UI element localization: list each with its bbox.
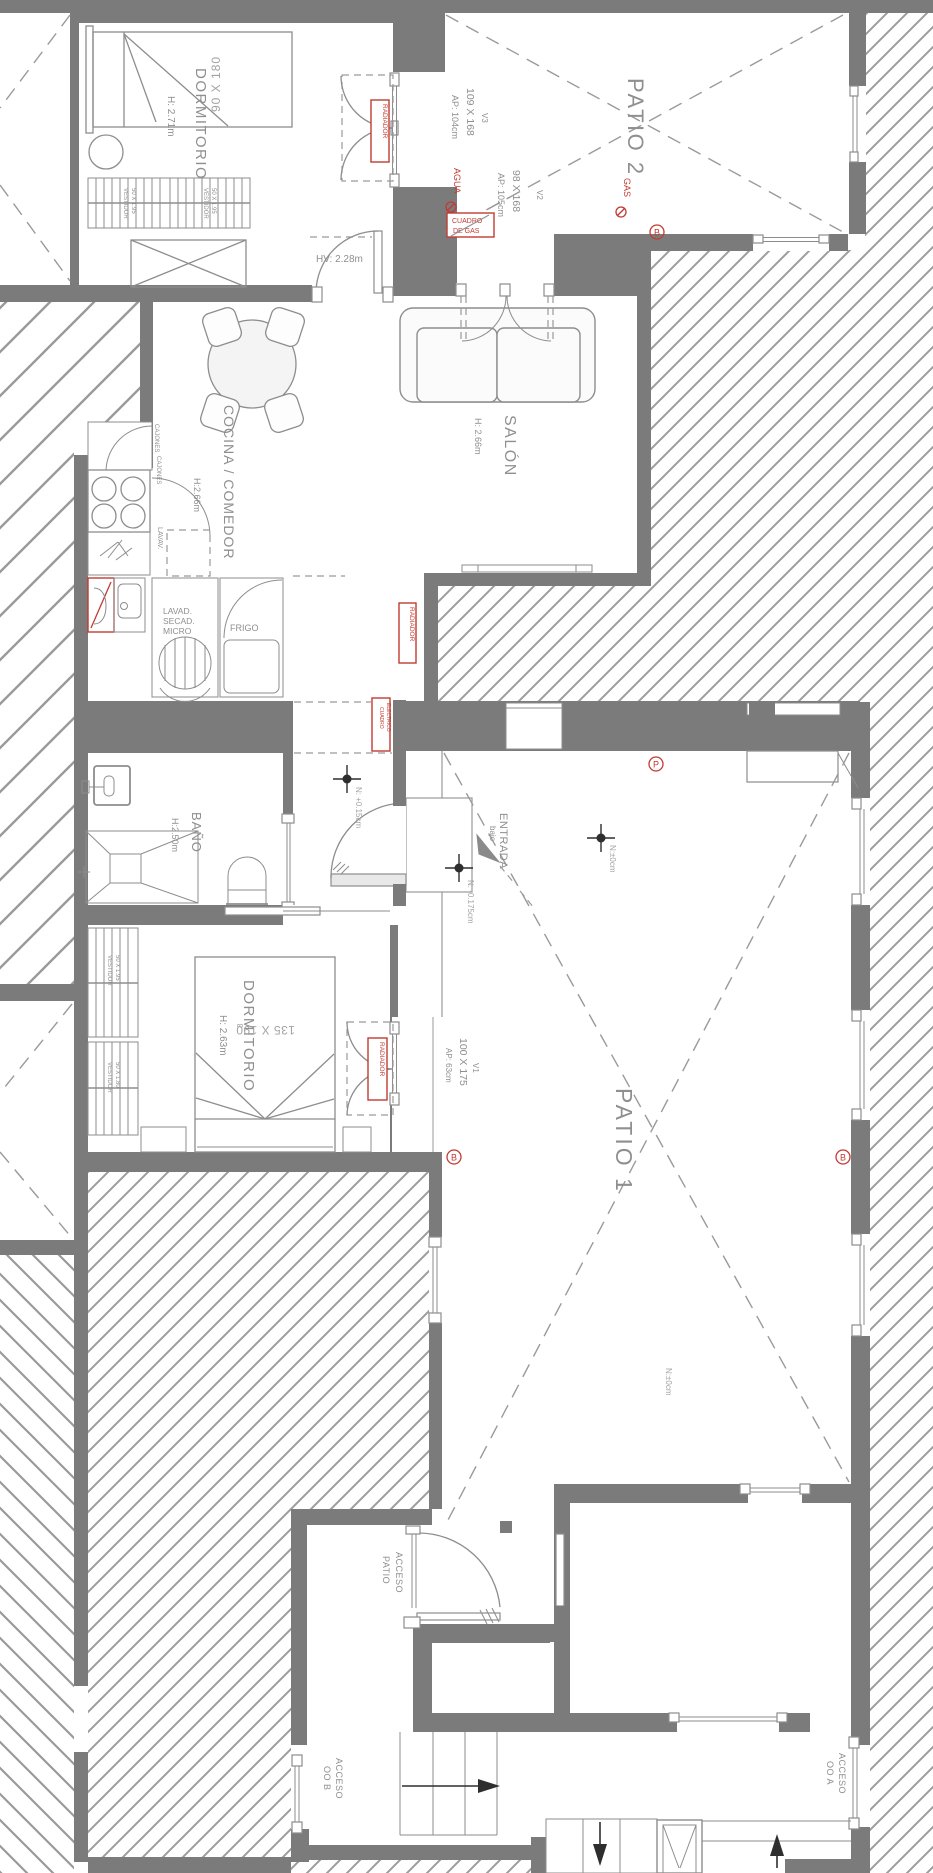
svg-text:PATIO 1: PATIO 1 <box>611 1088 637 1194</box>
svg-text:RADIADOR: RADIADOR <box>381 104 388 139</box>
svg-text:VESTIDOR: VESTIDOR <box>106 955 112 986</box>
svg-text:V2: V2 <box>535 190 544 200</box>
svg-text:N:±0cm: N:±0cm <box>664 1368 673 1396</box>
svg-text:P: P <box>653 760 659 770</box>
svg-text:N: +0.15cm: N: +0.15cm <box>354 787 363 828</box>
svg-text:LAVAV.: LAVAV. <box>156 527 163 549</box>
svg-text:H:2.66m: H:2.66m <box>192 478 202 512</box>
svg-text:MICRO: MICRO <box>163 626 192 636</box>
svg-text:100 X 175: 100 X 175 <box>457 1038 469 1086</box>
svg-text:109 X 168: 109 X 168 <box>464 88 476 136</box>
svg-text:BAÑO: BAÑO <box>189 812 204 853</box>
svg-text:H: 2.66m: H: 2.66m <box>473 418 483 455</box>
svg-text:50 X 1.95: 50 X 1.95 <box>210 188 216 214</box>
svg-text:ACCESO: ACCESO <box>334 1758 344 1799</box>
svg-text:90 X 180: 90 X 180 <box>209 56 223 112</box>
svg-text:ENTRADA: ENTRADA <box>497 813 509 869</box>
svg-text:GAS: GAS <box>622 178 632 197</box>
svg-text:OO A: OO A <box>825 1761 835 1785</box>
svg-text:CAJONES: CAJONES <box>153 424 159 452</box>
svg-text:H:2.50m: H:2.50m <box>170 818 180 852</box>
svg-text:RADIADOR: RADIADOR <box>378 1042 385 1077</box>
svg-text:PATIO 2: PATIO 2 <box>623 78 648 177</box>
svg-text:8: 8 <box>236 1023 245 1028</box>
svg-text:ACCESO: ACCESO <box>837 1753 847 1794</box>
svg-text:N: -0.175cm: N: -0.175cm <box>466 880 475 924</box>
svg-text:V3: V3 <box>480 113 489 123</box>
svg-text:HV: 2.28m: HV: 2.28m <box>316 254 363 265</box>
svg-text:OO B: OO B <box>322 1766 332 1791</box>
svg-text:98 X 168: 98 X 168 <box>510 170 522 212</box>
svg-text:PATIO: PATIO <box>381 1556 391 1584</box>
svg-text:DORMITORIO: DORMITORIO <box>192 68 209 180</box>
svg-text:ACCESO: ACCESO <box>394 1552 404 1593</box>
svg-text:LAVAD.: LAVAD. <box>163 606 192 616</box>
svg-text:N:±0cm: N:±0cm <box>608 845 617 873</box>
svg-text:FRIGO: FRIGO <box>230 623 259 633</box>
svg-text:CUADRO: CUADRO <box>378 707 384 729</box>
svg-text:B: B <box>840 1153 846 1163</box>
svg-text:COCINA / COMEDOR: COCINA / COMEDOR <box>221 405 237 559</box>
svg-text:H: 2.63m: H: 2.63m <box>217 1015 228 1056</box>
svg-text:VESTIDOR: VESTIDOR <box>202 188 208 219</box>
svg-text:VESTIDOR: VESTIDOR <box>122 188 128 219</box>
svg-text:B: B <box>654 228 660 238</box>
svg-text:AGUA: AGUA <box>452 168 462 194</box>
svg-text:VESTIDOR: VESTIDOR <box>106 1062 112 1093</box>
svg-text:AP: 63cm: AP: 63cm <box>444 1048 453 1083</box>
svg-text:50 X 1.95: 50 X 1.95 <box>130 188 136 214</box>
svg-text:bajo: bajo <box>488 826 497 842</box>
svg-text:CAJONES: CAJONES <box>155 456 161 484</box>
svg-text:SECAD.: SECAD. <box>163 616 195 626</box>
svg-text:50 X 1.80: 50 X 1.80 <box>114 1062 120 1088</box>
svg-text:ELECTRICO: ELECTRICO <box>385 703 391 732</box>
svg-text:SALÓN: SALÓN <box>501 415 520 477</box>
svg-text:DE GAS: DE GAS <box>453 228 480 235</box>
svg-text:H: 2.71m: H: 2.71m <box>165 96 176 137</box>
svg-text:B: B <box>451 1153 457 1163</box>
svg-text:50 X 1.95: 50 X 1.95 <box>114 955 120 981</box>
svg-text:RADIADOR: RADIADOR <box>408 607 415 642</box>
svg-text:V1: V1 <box>471 1063 480 1073</box>
svg-text:AP: 104cm: AP: 104cm <box>450 95 460 139</box>
svg-text:AP: 105cm: AP: 105cm <box>496 173 506 217</box>
